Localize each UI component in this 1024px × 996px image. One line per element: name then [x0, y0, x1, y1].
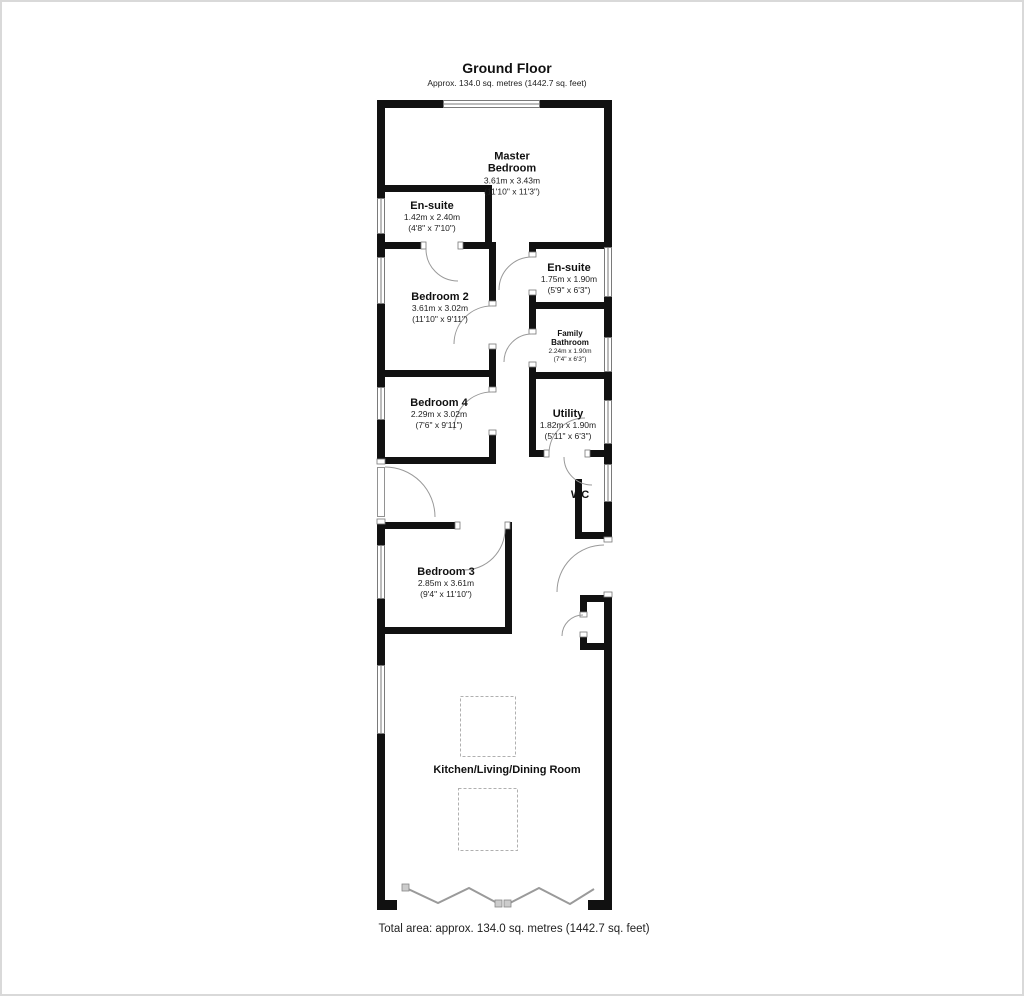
room-dimensions-metric: 1.82m x 1.90m: [540, 420, 596, 431]
room-dimensions-imperial: (5'9" x 6'3"): [541, 285, 597, 296]
room-name: En-suite: [404, 200, 460, 212]
room-dimensions-metric: 1.75m x 1.90m: [541, 274, 597, 285]
room-name: Bedroom 4: [410, 397, 467, 409]
plan-title-block: Ground Floor Approx. 134.0 sq. metres (1…: [427, 60, 586, 88]
room-label-kitchen-living-dining: Kitchen/Living/Dining Room: [433, 764, 580, 776]
floorplan-page: Ground Floor Approx. 134.0 sq. metres (1…: [0, 0, 1024, 996]
room-name: Kitchen/Living/Dining Room: [433, 764, 580, 776]
room-label-wc: WC: [571, 489, 589, 501]
page-subtitle: Approx. 134.0 sq. metres (1442.7 sq. fee…: [427, 78, 586, 88]
room-dimensions-imperial: (9'4" x 11'10"): [417, 589, 474, 600]
total-area-note: Total area: approx. 134.0 sq. metres (14…: [378, 923, 649, 935]
room-name: WC: [571, 489, 589, 501]
room-name: Bedroom 3: [417, 566, 474, 578]
room-dimensions-imperial: (4'8" x 7'10"): [404, 223, 460, 234]
room-name: Family Bathroom: [547, 330, 593, 348]
room-dimensions-metric: 3.61m x 3.43m: [481, 175, 543, 186]
room-name: Utility: [540, 408, 596, 420]
room-label-utility: Utility 1.82m x 1.90m (5'11" x 6'3"): [540, 408, 596, 442]
room-name: En-suite: [541, 262, 597, 274]
room-dimensions-imperial: (11'10" x 9'11"): [411, 314, 468, 325]
room-label-bedroom-3: Bedroom 3 2.85m x 3.61m (9'4" x 11'10"): [417, 566, 474, 600]
room-label-bedroom-2: Bedroom 2 3.61m x 3.02m (11'10" x 9'11"): [411, 291, 468, 325]
room-label-ensuite-2: En-suite 1.75m x 1.90m (5'9" x 6'3"): [541, 262, 597, 296]
room-dimensions-metric: 1.42m x 2.40m: [404, 212, 460, 223]
room-dimensions-imperial: (11'10" x 11'3"): [481, 186, 543, 197]
room-label-bedroom-4: Bedroom 4 2.29m x 3.02m (7'6" x 9'11"): [410, 397, 467, 431]
room-dimensions-metric: 2.29m x 3.02m: [410, 409, 467, 420]
page-title: Ground Floor: [427, 60, 586, 76]
room-label-ensuite-master: En-suite 1.42m x 2.40m (4'8" x 7'10"): [404, 200, 460, 234]
room-dimensions-imperial: (7'4" x 6'3"): [547, 356, 593, 364]
room-label-family-bathroom: Family Bathroom 2.24m x 1.90m (7'4" x 6'…: [547, 330, 593, 364]
room-dimensions-imperial: (5'11" x 6'3"): [540, 431, 596, 442]
room-dimensions-metric: 3.61m x 3.02m: [411, 303, 468, 314]
bifold-door-caps: [402, 884, 511, 907]
room-dimensions-imperial: (7'6" x 9'11"): [410, 420, 467, 431]
room-dimensions-metric: 2.24m x 1.90m: [547, 348, 593, 356]
room-label-master-bedroom: Master Bedroom 3.61m x 3.43m (11'10" x 1…: [481, 151, 543, 198]
room-name: Master Bedroom: [481, 151, 543, 176]
room-name: Bedroom 2: [411, 291, 468, 303]
room-dimensions-metric: 2.85m x 3.61m: [417, 578, 474, 589]
